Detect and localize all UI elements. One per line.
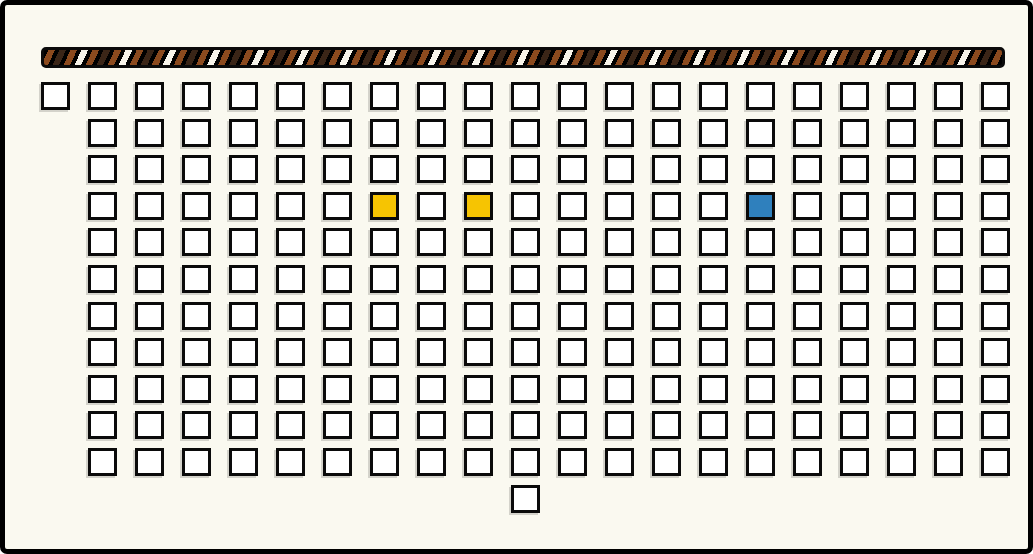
grid-cell[interactable]	[981, 119, 1010, 147]
grid-cell[interactable]	[699, 448, 728, 476]
grid-cell[interactable]	[652, 82, 681, 110]
grid-cell[interactable]	[417, 448, 446, 476]
grid-cell[interactable]	[417, 228, 446, 256]
grid-cell[interactable]	[88, 302, 117, 330]
grid-cell[interactable]	[511, 411, 540, 439]
grid-cell[interactable]	[229, 82, 258, 110]
grid-cell[interactable]	[511, 485, 540, 513]
grid-cell[interactable]	[182, 411, 211, 439]
yellow-highlight-cell-2[interactable]	[464, 192, 493, 220]
grid-cell[interactable]	[558, 228, 587, 256]
grid-cell[interactable]	[511, 228, 540, 256]
grid-cell[interactable]	[370, 448, 399, 476]
grid-cell[interactable]	[934, 375, 963, 403]
grid-cell[interactable]	[370, 119, 399, 147]
grid-cell[interactable]	[558, 265, 587, 293]
grid-cell[interactable]	[887, 265, 916, 293]
grid-cell[interactable]	[323, 411, 352, 439]
grid-cell[interactable]	[887, 192, 916, 220]
grid-cell[interactable]	[652, 302, 681, 330]
grid-cell[interactable]	[229, 119, 258, 147]
grid-cell[interactable]	[276, 411, 305, 439]
grid-cell[interactable]	[229, 448, 258, 476]
grid-cell[interactable]	[88, 338, 117, 366]
grid-cell[interactable]	[323, 119, 352, 147]
grid-cell[interactable]	[605, 155, 634, 183]
grid-cell[interactable]	[934, 411, 963, 439]
grid-cell[interactable]	[464, 375, 493, 403]
grid-cell[interactable]	[464, 338, 493, 366]
grid-cell[interactable]	[417, 82, 446, 110]
grid-cell[interactable]	[793, 411, 822, 439]
grid-cell[interactable]	[793, 448, 822, 476]
grid-cell[interactable]	[605, 375, 634, 403]
grid-cell[interactable]	[370, 375, 399, 403]
grid-cell[interactable]	[558, 411, 587, 439]
grid-cell[interactable]	[276, 302, 305, 330]
grid-cell[interactable]	[746, 82, 775, 110]
grid-cell[interactable]	[370, 155, 399, 183]
grid-cell[interactable]	[981, 411, 1010, 439]
grid-cell[interactable]	[699, 375, 728, 403]
grid-cell[interactable]	[511, 82, 540, 110]
grid-cell[interactable]	[605, 119, 634, 147]
grid-cell[interactable]	[135, 228, 164, 256]
grid-cell[interactable]	[558, 155, 587, 183]
grid-cell[interactable]	[605, 192, 634, 220]
grid-cell[interactable]	[417, 338, 446, 366]
board-canvas	[0, 0, 1033, 554]
grid-cell[interactable]	[934, 119, 963, 147]
grid-cell[interactable]	[88, 411, 117, 439]
grid-cell[interactable]	[652, 119, 681, 147]
grid-cell[interactable]	[182, 448, 211, 476]
grid-cell[interactable]	[464, 302, 493, 330]
grid-cell[interactable]	[887, 119, 916, 147]
grid-cell[interactable]	[746, 228, 775, 256]
grid-cell[interactable]	[793, 228, 822, 256]
grid-cell[interactable]	[699, 265, 728, 293]
grid-cell[interactable]	[229, 411, 258, 439]
grid-cell[interactable]	[135, 338, 164, 366]
grid-cell[interactable]	[135, 119, 164, 147]
grid-cell[interactable]	[558, 375, 587, 403]
grid-cell[interactable]	[370, 265, 399, 293]
grid-cell[interactable]	[511, 119, 540, 147]
grid-cell[interactable]	[981, 302, 1010, 330]
grid-cell[interactable]	[417, 155, 446, 183]
grid-cell[interactable]	[135, 375, 164, 403]
grid-cell[interactable]	[887, 302, 916, 330]
grid-cell[interactable]	[88, 192, 117, 220]
grid-cell[interactable]	[652, 375, 681, 403]
grid-cell[interactable]	[840, 375, 869, 403]
grid-cell[interactable]	[417, 119, 446, 147]
grid-cell[interactable]	[605, 411, 634, 439]
grid-cell[interactable]	[464, 82, 493, 110]
grid-cell[interactable]	[652, 228, 681, 256]
grid-cell[interactable]	[934, 448, 963, 476]
grid-cell[interactable]	[276, 82, 305, 110]
blue-highlight-cell[interactable]	[746, 192, 775, 220]
grid-cell[interactable]	[840, 265, 869, 293]
grid-cell[interactable]	[323, 228, 352, 256]
grid-cell[interactable]	[840, 119, 869, 147]
grid-cell[interactable]	[746, 302, 775, 330]
grid-cell[interactable]	[417, 375, 446, 403]
grid-cell[interactable]	[511, 265, 540, 293]
grid-cell[interactable]	[793, 302, 822, 330]
grid-cell[interactable]	[558, 302, 587, 330]
grid-cell[interactable]	[840, 82, 869, 110]
grid-cell[interactable]	[417, 192, 446, 220]
grid-cell[interactable]	[981, 228, 1010, 256]
grid-cell[interactable]	[88, 448, 117, 476]
grid-cell[interactable]	[699, 302, 728, 330]
grid-cell[interactable]	[135, 265, 164, 293]
grid-cell[interactable]	[276, 119, 305, 147]
grid-cell[interactable]	[370, 302, 399, 330]
grid-cell[interactable]	[840, 228, 869, 256]
grid-cell[interactable]	[511, 338, 540, 366]
grid-cell[interactable]	[182, 192, 211, 220]
grid-cell[interactable]	[699, 119, 728, 147]
grid-cell[interactable]	[605, 228, 634, 256]
grid-cell[interactable]	[793, 82, 822, 110]
grid-cell[interactable]	[840, 338, 869, 366]
grid-cell[interactable]	[182, 375, 211, 403]
grid-cell[interactable]	[276, 228, 305, 256]
grid-cell[interactable]	[793, 375, 822, 403]
grid-cell[interactable]	[229, 155, 258, 183]
grid-cell[interactable]	[699, 411, 728, 439]
grid-cell[interactable]	[887, 228, 916, 256]
grid-cell[interactable]	[88, 119, 117, 147]
grid-cell[interactable]	[652, 411, 681, 439]
grid-cell[interactable]	[981, 448, 1010, 476]
grid-cell[interactable]	[652, 192, 681, 220]
grid-cell[interactable]	[88, 265, 117, 293]
grid-cell[interactable]	[887, 82, 916, 110]
grid-cell[interactable]	[605, 82, 634, 110]
grid-cell[interactable]	[370, 411, 399, 439]
grid-cell[interactable]	[840, 411, 869, 439]
grid-cell[interactable]	[182, 265, 211, 293]
grid-cell[interactable]	[605, 265, 634, 293]
grid-cell[interactable]	[887, 375, 916, 403]
grid-cell[interactable]	[135, 82, 164, 110]
grid-cell[interactable]	[323, 302, 352, 330]
yellow-highlight-cell-1[interactable]	[370, 192, 399, 220]
grid-cell[interactable]	[276, 265, 305, 293]
grid-cell[interactable]	[840, 448, 869, 476]
grid-cell[interactable]	[323, 338, 352, 366]
grid-cell[interactable]	[981, 155, 1010, 183]
grid-cell[interactable]	[840, 192, 869, 220]
grid-cell[interactable]	[746, 265, 775, 293]
grid-cell[interactable]	[464, 411, 493, 439]
grid-cell[interactable]	[746, 375, 775, 403]
grid-cell[interactable]	[88, 82, 117, 110]
grid-cell[interactable]	[88, 228, 117, 256]
grid-cell[interactable]	[229, 338, 258, 366]
grid-cell[interactable]	[88, 155, 117, 183]
grid-cell[interactable]	[464, 155, 493, 183]
grid-cell[interactable]	[887, 155, 916, 183]
grid-cell[interactable]	[793, 265, 822, 293]
grid-cell[interactable]	[699, 155, 728, 183]
grid-cell[interactable]	[746, 338, 775, 366]
grid-cell[interactable]	[652, 265, 681, 293]
grid-cell[interactable]	[135, 302, 164, 330]
grid-cell[interactable]	[323, 82, 352, 110]
grid-cell[interactable]	[464, 265, 493, 293]
grid-cell[interactable]	[605, 448, 634, 476]
grid-cell[interactable]	[464, 119, 493, 147]
grid-cell[interactable]	[323, 448, 352, 476]
grid-cell[interactable]	[88, 375, 117, 403]
grid-cell[interactable]	[511, 448, 540, 476]
grid-cell[interactable]	[182, 119, 211, 147]
hatched-bar	[41, 47, 1005, 68]
grid-cell[interactable]	[981, 375, 1010, 403]
grid-cell[interactable]	[323, 375, 352, 403]
grid-cell[interactable]	[229, 375, 258, 403]
grid-cell[interactable]	[417, 265, 446, 293]
grid-cell[interactable]	[464, 228, 493, 256]
grid-cell[interactable]	[934, 302, 963, 330]
grid-cell[interactable]	[417, 302, 446, 330]
grid-cell[interactable]	[417, 411, 446, 439]
grid-cell[interactable]	[182, 338, 211, 366]
grid-cell[interactable]	[746, 448, 775, 476]
grid-cell[interactable]	[182, 82, 211, 110]
grid-cell[interactable]	[323, 155, 352, 183]
grid-cell[interactable]	[746, 411, 775, 439]
grid-cell[interactable]	[934, 192, 963, 220]
grid-cell[interactable]	[135, 155, 164, 183]
grid-cell[interactable]	[558, 82, 587, 110]
grid-cell[interactable]	[652, 448, 681, 476]
grid-cell[interactable]	[981, 265, 1010, 293]
grid-cell[interactable]	[793, 155, 822, 183]
grid-cell[interactable]	[135, 192, 164, 220]
grid-cell[interactable]	[793, 192, 822, 220]
grid-cell[interactable]	[511, 375, 540, 403]
grid-cell[interactable]	[135, 411, 164, 439]
grid-cell[interactable]	[793, 119, 822, 147]
grid-cell[interactable]	[276, 338, 305, 366]
grid-cell[interactable]	[370, 82, 399, 110]
grid-cell[interactable]	[370, 338, 399, 366]
grid-cell[interactable]	[558, 338, 587, 366]
grid-cell[interactable]	[182, 228, 211, 256]
grid-cell[interactable]	[323, 265, 352, 293]
grid-cell[interactable]	[229, 265, 258, 293]
grid-cell[interactable]	[276, 375, 305, 403]
grid-cell[interactable]	[934, 82, 963, 110]
grid-cell[interactable]	[229, 302, 258, 330]
grid-cell[interactable]	[276, 192, 305, 220]
grid-cell[interactable]	[887, 411, 916, 439]
grid-cell[interactable]	[934, 338, 963, 366]
grid-cell[interactable]	[699, 82, 728, 110]
grid-cell[interactable]	[511, 302, 540, 330]
grid-cell[interactable]	[605, 302, 634, 330]
grid-cell[interactable]	[981, 338, 1010, 366]
grid-cell[interactable]	[652, 338, 681, 366]
grid-cell[interactable]	[840, 155, 869, 183]
grid-cell[interactable]	[746, 155, 775, 183]
grid-cell[interactable]	[840, 302, 869, 330]
grid-cell[interactable]	[699, 192, 728, 220]
grid-cell[interactable]	[558, 192, 587, 220]
grid-cell[interactable]	[182, 155, 211, 183]
grid-cell[interactable]	[699, 228, 728, 256]
grid-cell[interactable]	[276, 448, 305, 476]
grid-cell[interactable]	[229, 228, 258, 256]
grid-cell[interactable]	[887, 448, 916, 476]
grid-cell[interactable]	[276, 155, 305, 183]
grid-cell[interactable]	[981, 82, 1010, 110]
grid-cell[interactable]	[323, 192, 352, 220]
grid-cell[interactable]	[229, 192, 258, 220]
grid-cell[interactable]	[558, 448, 587, 476]
grid-cell[interactable]	[934, 155, 963, 183]
grid-cell[interactable]	[981, 192, 1010, 220]
grid-cell[interactable]	[135, 448, 164, 476]
grid-cell[interactable]	[934, 228, 963, 256]
grid-cell[interactable]	[511, 155, 540, 183]
grid-cell[interactable]	[652, 155, 681, 183]
grid-cell[interactable]	[41, 82, 70, 110]
grid-cell[interactable]	[934, 265, 963, 293]
grid-cell[interactable]	[746, 119, 775, 147]
grid-cell[interactable]	[464, 448, 493, 476]
grid-cell[interactable]	[558, 119, 587, 147]
grid-cell[interactable]	[182, 302, 211, 330]
grid-cell[interactable]	[887, 338, 916, 366]
grid-cell[interactable]	[605, 338, 634, 366]
grid-cell[interactable]	[699, 338, 728, 366]
grid-cell[interactable]	[370, 228, 399, 256]
grid-cell[interactable]	[511, 192, 540, 220]
grid-cell[interactable]	[793, 338, 822, 366]
